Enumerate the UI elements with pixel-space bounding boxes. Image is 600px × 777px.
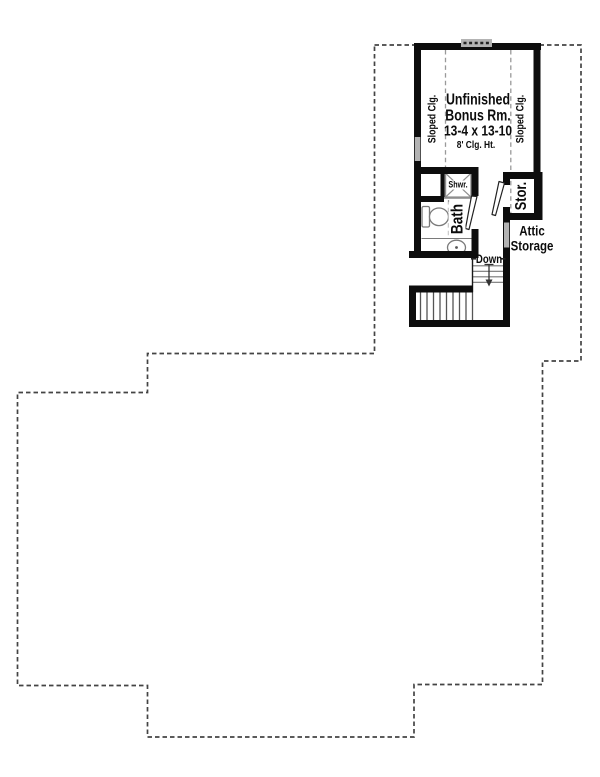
sloped-ceiling-label-right: Sloped Clg. [516, 95, 527, 143]
bath-label: Bath [448, 202, 465, 235]
floor-plan-canvas: Unfinished Bonus Rm. 13-4 x 13-10 8' Clg… [0, 0, 600, 777]
half-wall-segment [504, 223, 509, 248]
storage-door [492, 182, 505, 216]
stairs-down-label: Down [475, 253, 501, 265]
down-arrow-icon [485, 265, 494, 287]
bonus-room-name-line1: Unfinished [446, 92, 510, 108]
bath-door [466, 196, 478, 230]
attic-vent [461, 39, 492, 47]
sloped-ceiling-label-left: Sloped Clg. [428, 95, 439, 143]
left-wall-window [415, 137, 421, 161]
attic-storage-label-line2: Storage [511, 239, 554, 253]
storage-closet-label: Stor. [514, 182, 530, 210]
bonus-room-dimensions: 13-4 x 13-10 [443, 124, 511, 139]
footprint-dashed-outline [18, 45, 582, 737]
stair-treads-lower [421, 292, 473, 320]
bonus-room-ceiling-height: 8' Clg. Ht. [457, 140, 495, 151]
bonus-room-name-line2: Bonus Rm. [445, 108, 510, 124]
attic-storage-label-line1: Attic [519, 224, 545, 238]
shower-label: Shwr. [447, 181, 469, 190]
toilet [422, 207, 449, 228]
